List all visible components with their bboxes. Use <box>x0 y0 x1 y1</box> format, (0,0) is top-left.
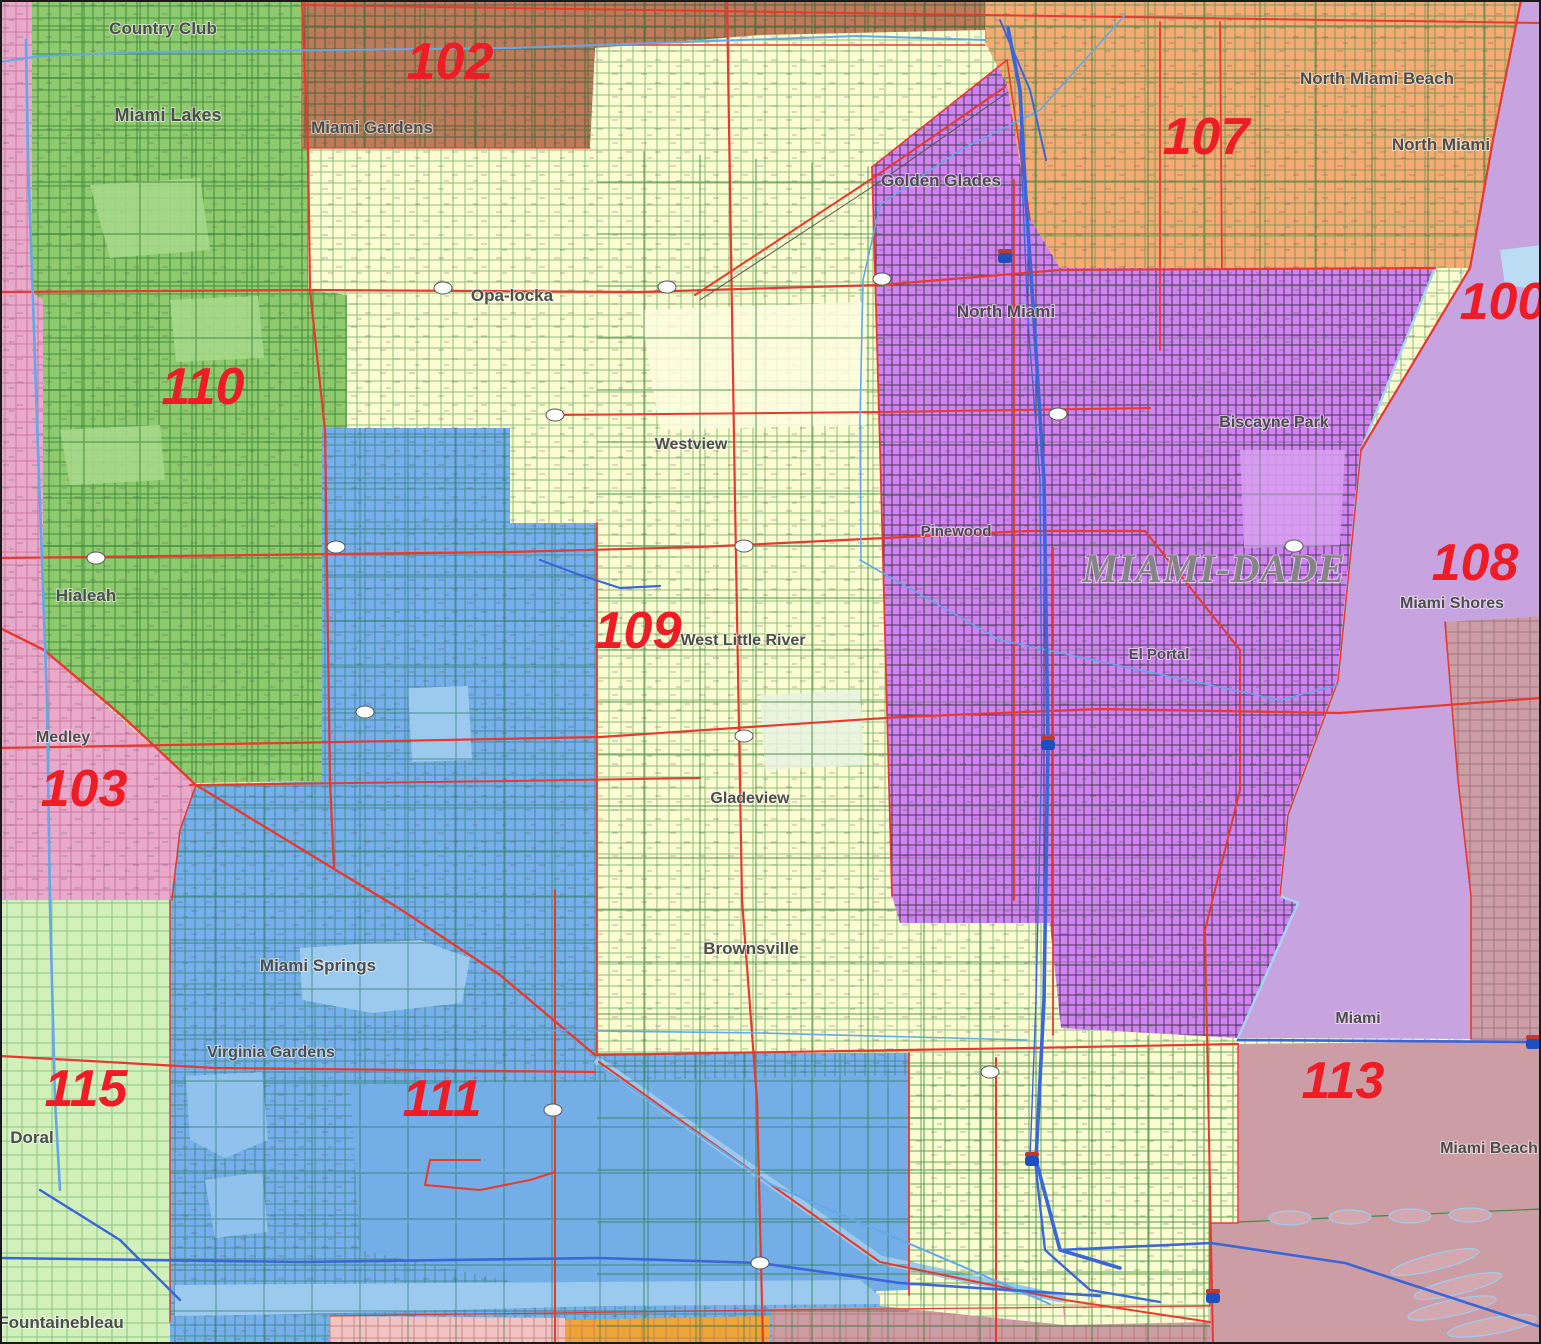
svg-text:Medley: Medley <box>36 729 90 746</box>
svg-text:Pinewood: Pinewood <box>921 523 992 540</box>
svg-text:Westview: Westview <box>655 436 728 453</box>
svg-text:Miami Gardens: Miami Gardens <box>311 118 433 137</box>
svg-text:111: 111 <box>402 1070 481 1128</box>
svg-text:102: 102 <box>407 33 494 91</box>
svg-text:El Portal: El Portal <box>1129 646 1190 663</box>
svg-text:North Miami: North Miami <box>1392 135 1490 154</box>
svg-text:109: 109 <box>595 602 682 660</box>
svg-text:West Little River: West Little River <box>680 632 805 649</box>
svg-text:108: 108 <box>1432 534 1519 592</box>
svg-text:North Miami: North Miami <box>957 302 1055 321</box>
svg-text:Miami: Miami <box>1335 1010 1380 1027</box>
svg-text:Country Club: Country Club <box>109 19 217 38</box>
svg-text:Brownsville: Brownsville <box>703 939 798 958</box>
svg-text:Gladeview: Gladeview <box>710 790 790 807</box>
svg-text:Golden Glades: Golden Glades <box>881 171 1001 190</box>
svg-text:110: 110 <box>162 358 245 416</box>
svg-text:103: 103 <box>41 760 128 818</box>
svg-text:Hialeah: Hialeah <box>56 586 116 605</box>
svg-text:Miami Beach: Miami Beach <box>1440 1140 1538 1157</box>
svg-text:Opa-locka: Opa-locka <box>471 286 554 305</box>
svg-text:113: 113 <box>1302 1052 1385 1110</box>
svg-text:107: 107 <box>1163 108 1252 166</box>
svg-text:Virginia Gardens: Virginia Gardens <box>207 1044 335 1061</box>
svg-text:Miami Shores: Miami Shores <box>1400 595 1504 612</box>
svg-text:Miami Lakes: Miami Lakes <box>114 105 221 125</box>
svg-text:Biscayne Park: Biscayne Park <box>1219 414 1329 431</box>
svg-text:115: 115 <box>45 1060 129 1118</box>
svg-text:Doral: Doral <box>10 1128 53 1147</box>
svg-text:MIAMI-DADE: MIAMI-DADE <box>1081 546 1345 591</box>
svg-text:North Miami Beach: North Miami Beach <box>1300 69 1454 88</box>
svg-text:Fountainebleau: Fountainebleau <box>0 1313 124 1332</box>
svg-text:Miami Springs: Miami Springs <box>260 956 376 975</box>
svg-text:100: 100 <box>1460 273 1541 331</box>
